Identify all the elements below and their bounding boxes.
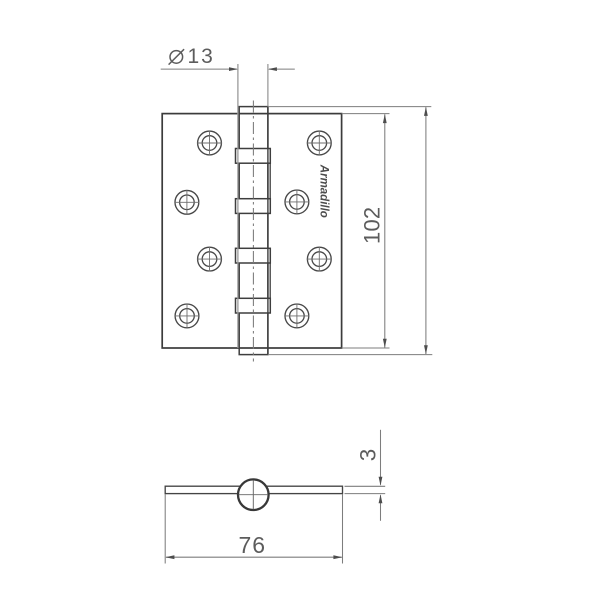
svg-text:102: 102 bbox=[360, 207, 385, 244]
svg-text:Armadillo: Armadillo bbox=[317, 164, 329, 218]
svg-text:76: 76 bbox=[239, 532, 267, 558]
svg-text:3: 3 bbox=[356, 449, 381, 462]
svg-text:13: 13 bbox=[188, 45, 215, 68]
